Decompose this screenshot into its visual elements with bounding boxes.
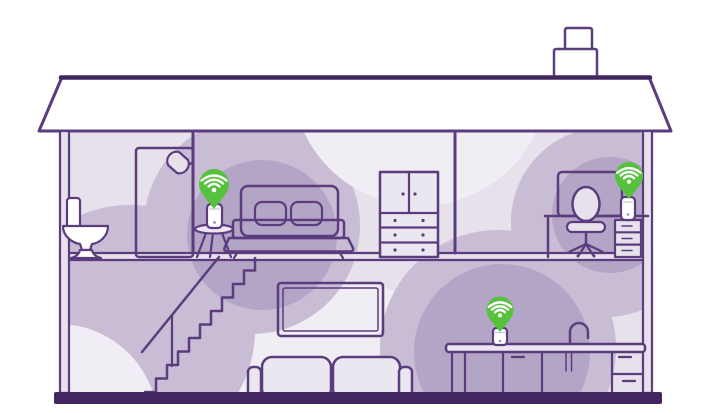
left-wall: [60, 131, 69, 393]
wardrobe: [380, 172, 438, 257]
illustration-canvas: [0, 0, 714, 413]
right-wall: [643, 131, 652, 393]
house-wifi-illustration: [0, 0, 714, 413]
kitchen-counter: [446, 344, 645, 352]
roof: [39, 77, 671, 131]
wifi-device-office: [621, 197, 635, 220]
drawer-unit: [615, 220, 641, 257]
ground-bar: [54, 392, 662, 404]
chimney: [554, 28, 597, 79]
